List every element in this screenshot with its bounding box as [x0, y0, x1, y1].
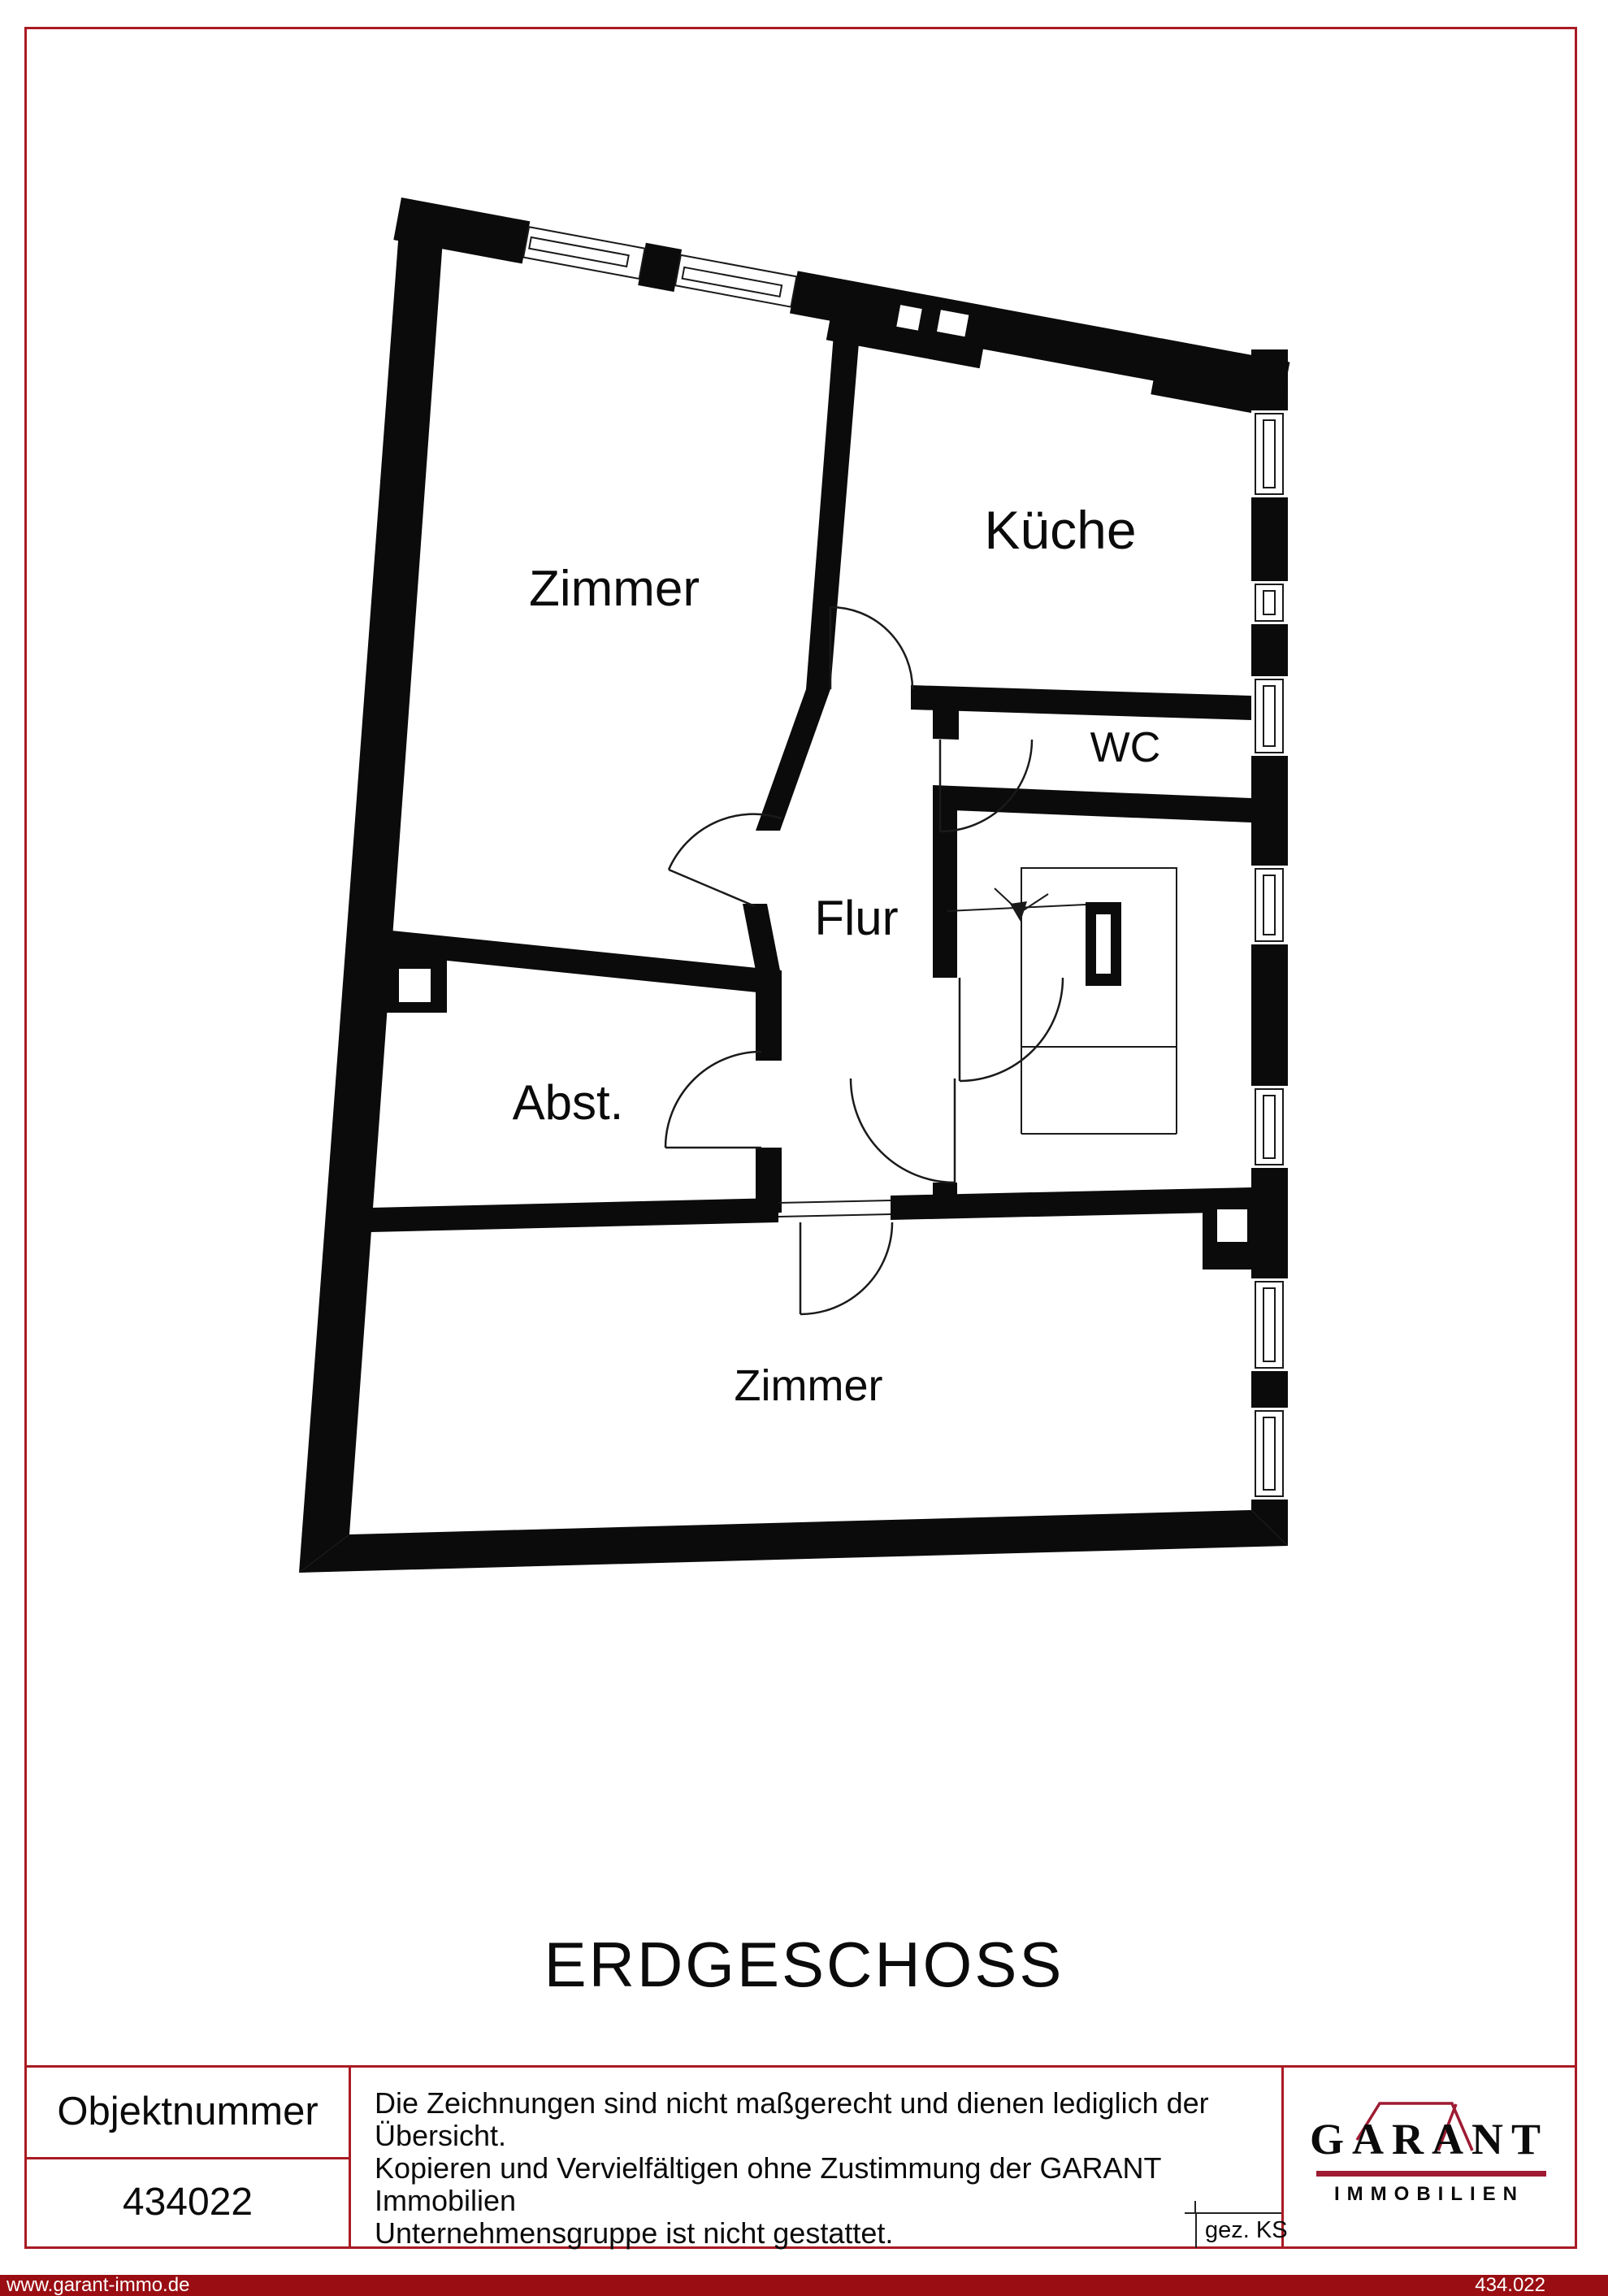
- drawn-by-box-topline: [1185, 2212, 1281, 2214]
- window-right-3: [1251, 676, 1288, 756]
- drawn-by-label: gez. KS: [1205, 2217, 1288, 2244]
- window-right-2: [1251, 581, 1288, 624]
- garant-logo: GARANT IMMOBILIEN: [1284, 2068, 1575, 2246]
- disclaimer-line-3: Unternehmensgruppe ist nicht gestattet.: [375, 2217, 1268, 2250]
- wall-wc-stub: [933, 706, 959, 740]
- room-label-zimmer-top: Zimmer: [529, 561, 700, 617]
- wall-kueche-wc: [911, 685, 1251, 720]
- window-right-1: [1251, 410, 1288, 497]
- footer-plan-number: 434.022: [1475, 2274, 1545, 2296]
- room-label-flur: Flur: [814, 891, 898, 945]
- door-kueche: [830, 607, 912, 689]
- outer-wall-bottom: [299, 1510, 1288, 1573]
- window-right-7: [1251, 1408, 1288, 1500]
- door-stairhall: [960, 978, 1063, 1081]
- room-label-kueche: Küche: [984, 500, 1136, 560]
- footer-website: www.garant-immo.de: [7, 2274, 189, 2296]
- logo-underline: [1316, 2171, 1546, 2177]
- door-flur-stair: [851, 1079, 955, 1183]
- window-right-4: [1251, 866, 1288, 944]
- disclaimer-line-1: Die Zeichnungen sind nicht maßgerecht un…: [375, 2087, 1268, 2152]
- wall-zimmer-flur-diagonal-2: [743, 904, 780, 970]
- room-label-zimmer-bottom: Zimmer: [735, 1361, 883, 1410]
- wall-wc-stair: [933, 785, 1251, 822]
- plan-title: ERDGESCHOSS: [0, 1928, 1608, 2002]
- window-right-6: [1251, 1278, 1288, 1371]
- wall-abst-flur-upper: [756, 968, 782, 1061]
- disclaimer-line-2: Kopieren und Vervielfältigen ohne Zustim…: [375, 2152, 1268, 2217]
- room-label-abst: Abst.: [513, 1075, 624, 1130]
- logo-brand-text: GARANT: [1284, 2114, 1575, 2164]
- stair-direction-arrow-icon: [1010, 901, 1027, 922]
- door-abst: [665, 1052, 761, 1148]
- wall-zimmer-kueche: [806, 313, 861, 689]
- drawn-by-box-leftline: [1195, 2212, 1197, 2248]
- drawn-by-box-tick: [1194, 2201, 1196, 2212]
- door-entry-zimmer: [778, 1200, 892, 1314]
- floorplan-page: Zimmer Küche WC Flur Abst. Zimmer ERDGES…: [0, 0, 1608, 2296]
- disclaimer-text: Die Zeichnungen sind nicht maßgerecht un…: [375, 2087, 1268, 2250]
- object-number-value: 434022: [27, 2157, 349, 2246]
- table-divider-1: [349, 2065, 351, 2249]
- logo-division-text: IMMOBILIEN: [1284, 2183, 1575, 2206]
- wall-zimmer-bottom-left: [371, 1198, 778, 1232]
- outer-wall-left: [299, 197, 443, 1573]
- object-number-label: Objektnummer: [27, 2065, 349, 2157]
- wall-zimmer-flur-diagonal-1: [756, 689, 830, 831]
- wall-flur-stair-upper: [933, 809, 957, 978]
- room-label-wc: WC: [1090, 724, 1161, 771]
- chimney-flue-1: [896, 305, 921, 330]
- staircase: [947, 868, 1177, 1134]
- footer-bar: www.garant-immo.de 434.022: [0, 2275, 1608, 2296]
- window-right-5: [1251, 1086, 1288, 1168]
